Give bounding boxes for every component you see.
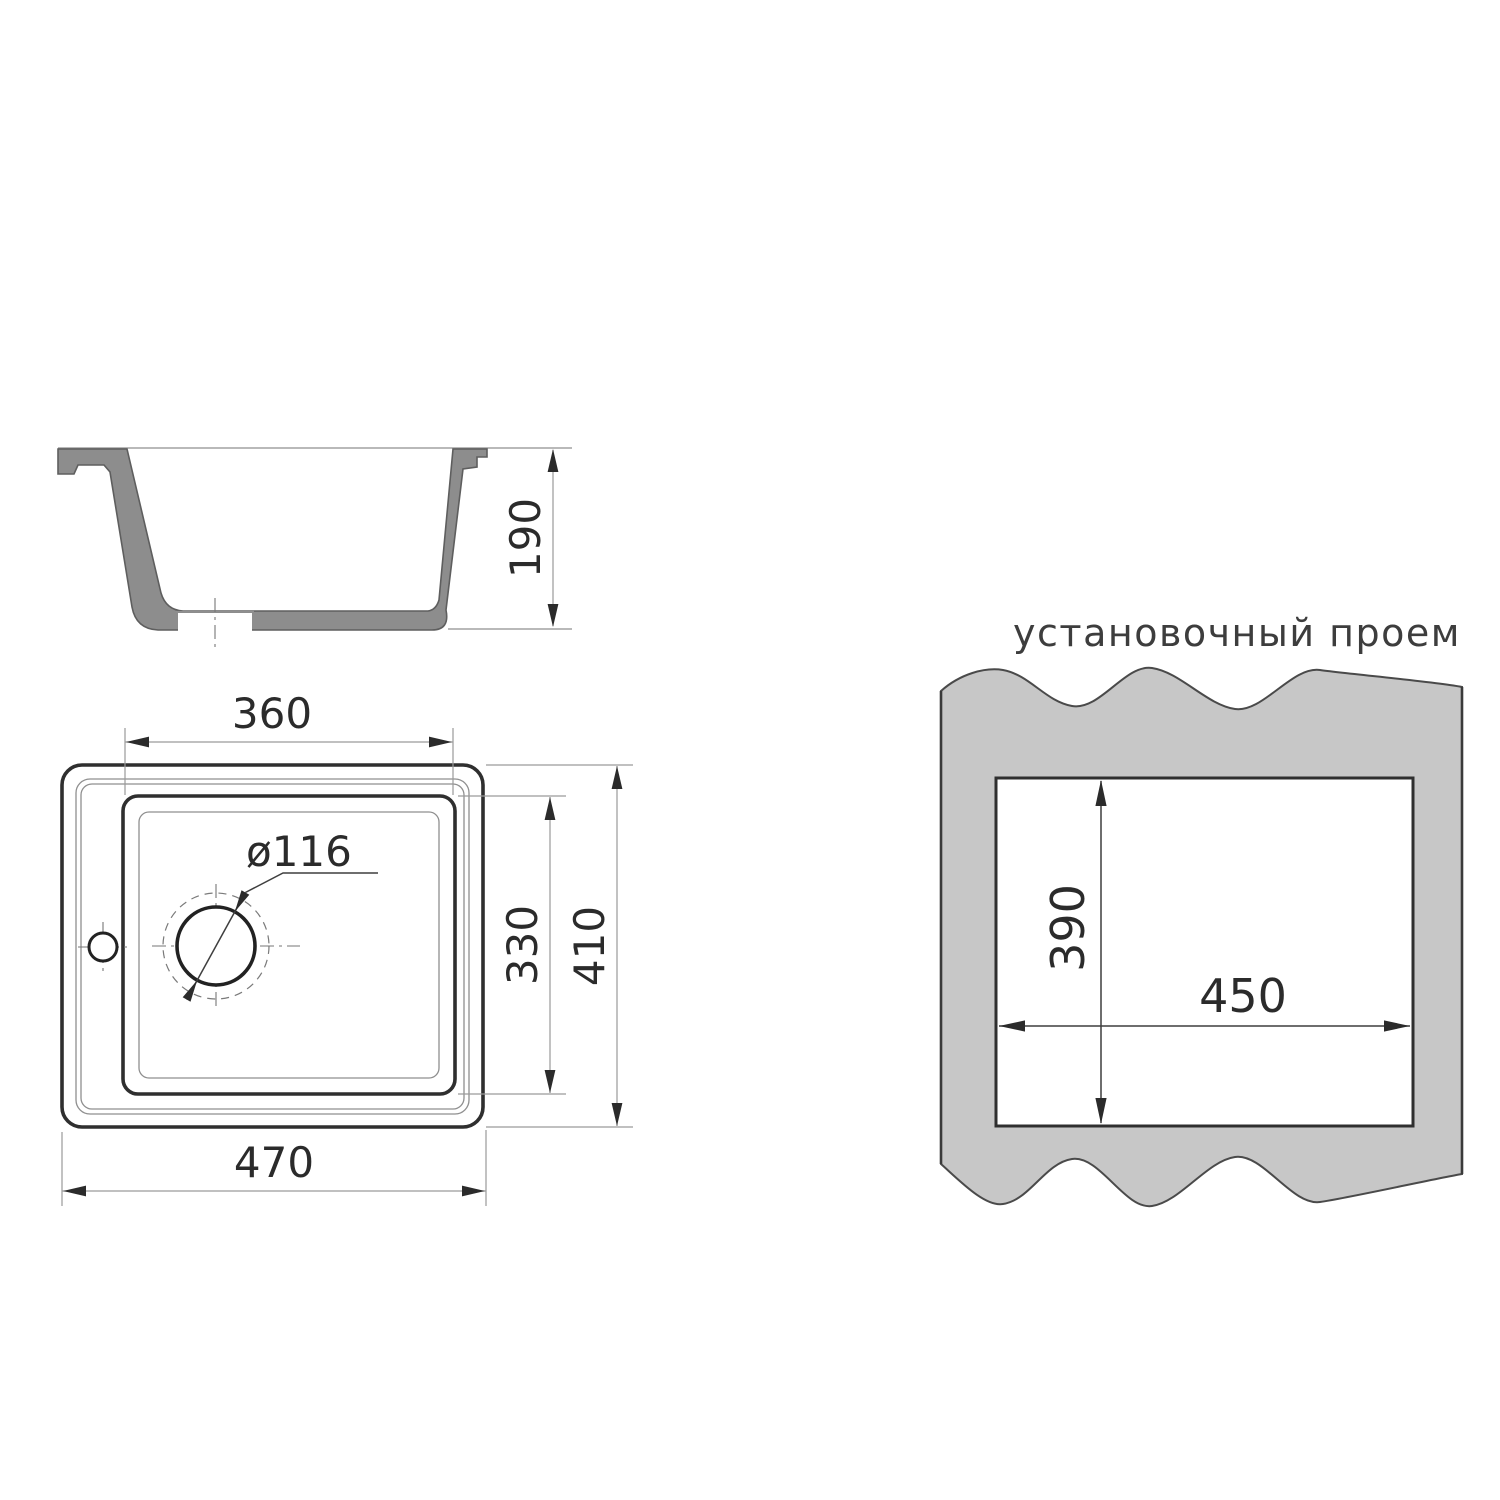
arrowhead-up [612,766,623,789]
tap-hole-circle [89,933,117,961]
dimension-330: 330 [458,796,566,1094]
sink-technical-drawing: 190 ø116 [0,0,1500,1500]
installation-view: установочный проем 390 450 [941,611,1462,1206]
arrowhead-left [126,737,149,748]
arrowhead-up [548,449,559,472]
arrowhead-right [462,1186,485,1197]
arrowhead-down [548,604,559,627]
arrowhead-down [545,1070,556,1093]
dimension-190: 190 [501,449,558,627]
sink-cross-section-body [58,449,487,630]
dimension-label-height: 190 [501,498,550,578]
dimension-label-overall-height: 410 [565,906,614,986]
installation-title: установочный проем [1013,611,1461,655]
dimension-label-bowl-depth: 330 [498,905,547,985]
dimension-470: 470 [62,1130,486,1206]
arrowhead-up [545,797,556,820]
dimension-label-bowl-width: 360 [232,689,312,738]
top-view: ø116 360 330 410 [62,689,633,1206]
dimension-label-overall-width: 470 [234,1138,314,1187]
arrowhead-right [429,737,452,748]
arrowhead-lower [183,980,198,1002]
drain-hole [152,884,300,1010]
dimension-label-drain-diameter: ø116 [246,827,352,876]
technical-drawing-sheet: 190 ø116 [0,0,1500,1500]
arrowhead-down [612,1103,623,1126]
arrowhead-left [63,1186,86,1197]
dimension-label-opening-width: 450 [1199,969,1287,1023]
section-view: 190 [58,448,572,648]
arrowhead-upper [235,890,250,912]
dimension-label-opening-height: 390 [1041,884,1095,972]
